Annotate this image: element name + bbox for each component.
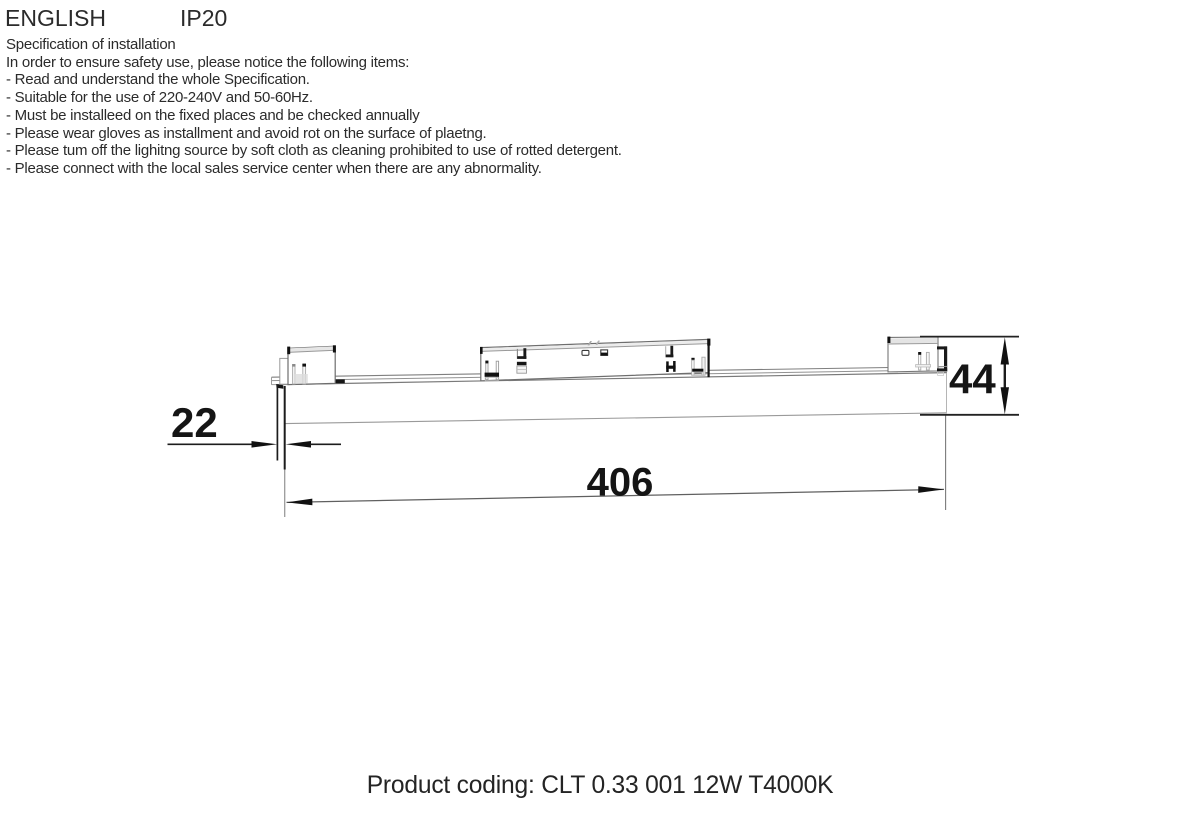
- svg-text:406: 406: [587, 461, 654, 505]
- svg-text:22: 22: [171, 399, 218, 446]
- svg-text:44: 44: [949, 356, 996, 403]
